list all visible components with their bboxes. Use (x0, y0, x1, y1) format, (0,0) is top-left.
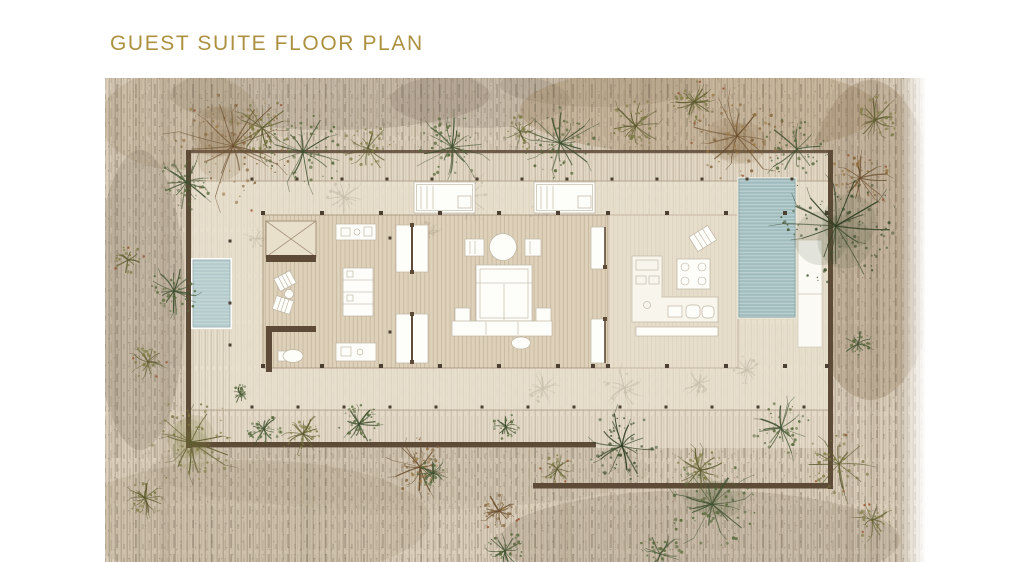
vanity-counter (336, 224, 376, 240)
floor-plan-drawing (105, 78, 925, 562)
sliding-door (396, 223, 428, 274)
page-title: GUEST SUITE FLOOR PLAN (110, 32, 424, 56)
plunge-pool (191, 258, 232, 329)
column-dot (724, 364, 728, 368)
outdoor-shower-court (266, 221, 316, 262)
column-dot (261, 364, 265, 368)
column-dot (297, 406, 300, 409)
column-dot (573, 406, 576, 409)
column-dot (431, 178, 434, 181)
column-dot (379, 211, 383, 215)
column-dot (606, 364, 610, 368)
column-dot (261, 211, 265, 215)
column-dot (665, 406, 668, 409)
sliding-door (591, 317, 607, 363)
column-dot (665, 211, 669, 215)
column-dot (386, 178, 389, 181)
sliding-door (591, 227, 607, 269)
column-dot (791, 178, 794, 181)
column-dot (481, 406, 484, 409)
wardrobe (343, 268, 373, 316)
column-dot (476, 178, 479, 181)
column-dot (619, 406, 622, 409)
presentation-slide: GUEST SUITE FLOOR PLAN (0, 0, 1024, 562)
column-dot (229, 240, 232, 243)
cooktop-island (677, 259, 710, 289)
column-dot (389, 406, 392, 409)
column-dot (251, 178, 254, 181)
column-dot (591, 364, 595, 368)
column-dot (343, 406, 346, 409)
dining-set (668, 305, 714, 318)
column-dot (435, 406, 438, 409)
column-dot (527, 406, 530, 409)
column-dot (665, 364, 669, 368)
column-dot (497, 211, 501, 215)
floor-plan-svg (105, 78, 925, 562)
column-dot (521, 178, 524, 181)
column-dot (566, 178, 569, 181)
column-dot (746, 178, 749, 181)
sliding-door (396, 312, 428, 364)
column-dot (438, 364, 442, 368)
column-dot (757, 406, 760, 409)
column-dot (379, 364, 383, 368)
column-dot (656, 178, 659, 181)
column-dot (783, 211, 787, 215)
column-dot (320, 364, 324, 368)
deck-daybed (534, 182, 595, 213)
column-dot (556, 211, 560, 215)
deck-daybed (414, 182, 475, 213)
swimming-pool (738, 178, 796, 318)
column-dot (701, 178, 704, 181)
foot-bench (452, 321, 552, 336)
column-dot (606, 211, 610, 215)
column-dot (389, 331, 392, 334)
column-dot (251, 406, 254, 409)
edge-fade (900, 78, 925, 562)
column-dot (783, 364, 787, 368)
column-dot (724, 211, 728, 215)
column-dot (389, 237, 392, 240)
column-dot (825, 364, 829, 368)
vanity-counter (336, 343, 376, 361)
column-dot (711, 406, 714, 409)
column-dot (556, 364, 560, 368)
column-dot (341, 178, 344, 181)
column-dot (803, 406, 806, 409)
column-dot (229, 302, 232, 305)
column-dot (611, 178, 614, 181)
column-dot (229, 344, 232, 347)
column-dot (497, 364, 501, 368)
column-dot (320, 211, 324, 215)
column-dot (438, 211, 442, 215)
